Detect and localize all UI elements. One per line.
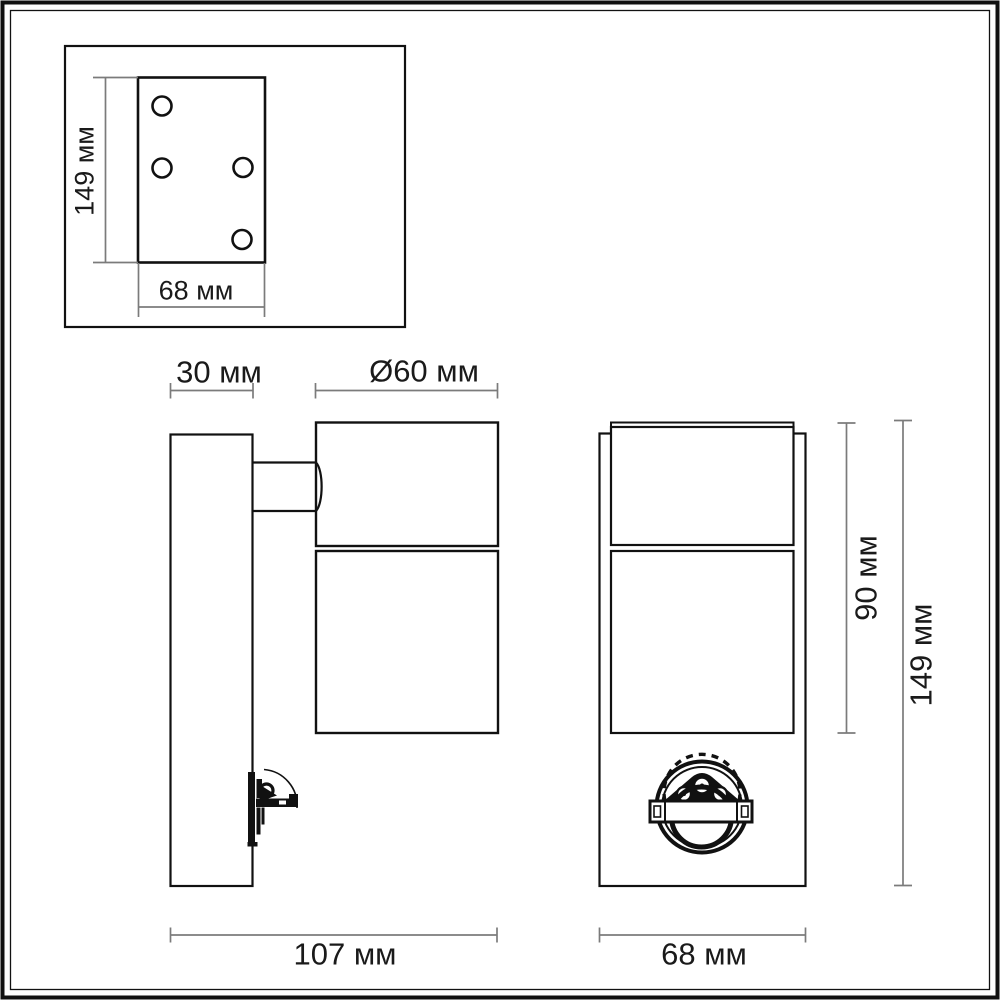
dimension-drawing-page: 149 мм 68 мм 30 мм Ø60 мм 107 мм 68 мм 9… xyxy=(0,0,1000,1000)
lamp-cylinder-upper-front xyxy=(611,427,794,545)
sensor-lower-bar xyxy=(257,808,261,835)
side-view xyxy=(171,423,499,887)
pir-sensor-side xyxy=(248,770,299,847)
sensor-band-step xyxy=(289,794,298,799)
label-plate-height: 149 мм xyxy=(72,126,99,216)
drawing-canvas xyxy=(0,0,1000,1000)
mounting-hole xyxy=(153,159,172,178)
mounting-hole xyxy=(153,97,172,116)
sensor-lower-bar xyxy=(262,808,265,825)
mounting-plate-view xyxy=(65,46,405,327)
label-diameter: Ø60 мм xyxy=(369,356,479,387)
sensor-foot xyxy=(248,842,258,847)
mounting-hole xyxy=(233,230,252,249)
label-plate-depth: 30 мм xyxy=(176,357,262,388)
lamp-cylinder-upper-side xyxy=(316,423,498,547)
mounting-arm xyxy=(253,463,322,512)
label-overall-depth: 107 мм xyxy=(294,939,397,970)
label-overall-height: 149 мм xyxy=(906,604,937,707)
mounting-hole xyxy=(234,158,253,177)
label-front-width: 68 мм xyxy=(661,939,747,970)
lamp-cylinder-lower-front xyxy=(611,551,794,733)
front-view xyxy=(600,423,806,887)
wall-plate-side xyxy=(171,435,253,887)
sensor-band-side xyxy=(256,799,298,808)
label-plate-width: 68 мм xyxy=(159,278,234,305)
lamp-cylinder-lower-side xyxy=(316,551,498,733)
label-body-height: 90 мм xyxy=(851,535,882,621)
sensor-band-gap xyxy=(279,801,286,805)
sensor-lower-bar xyxy=(250,808,255,843)
